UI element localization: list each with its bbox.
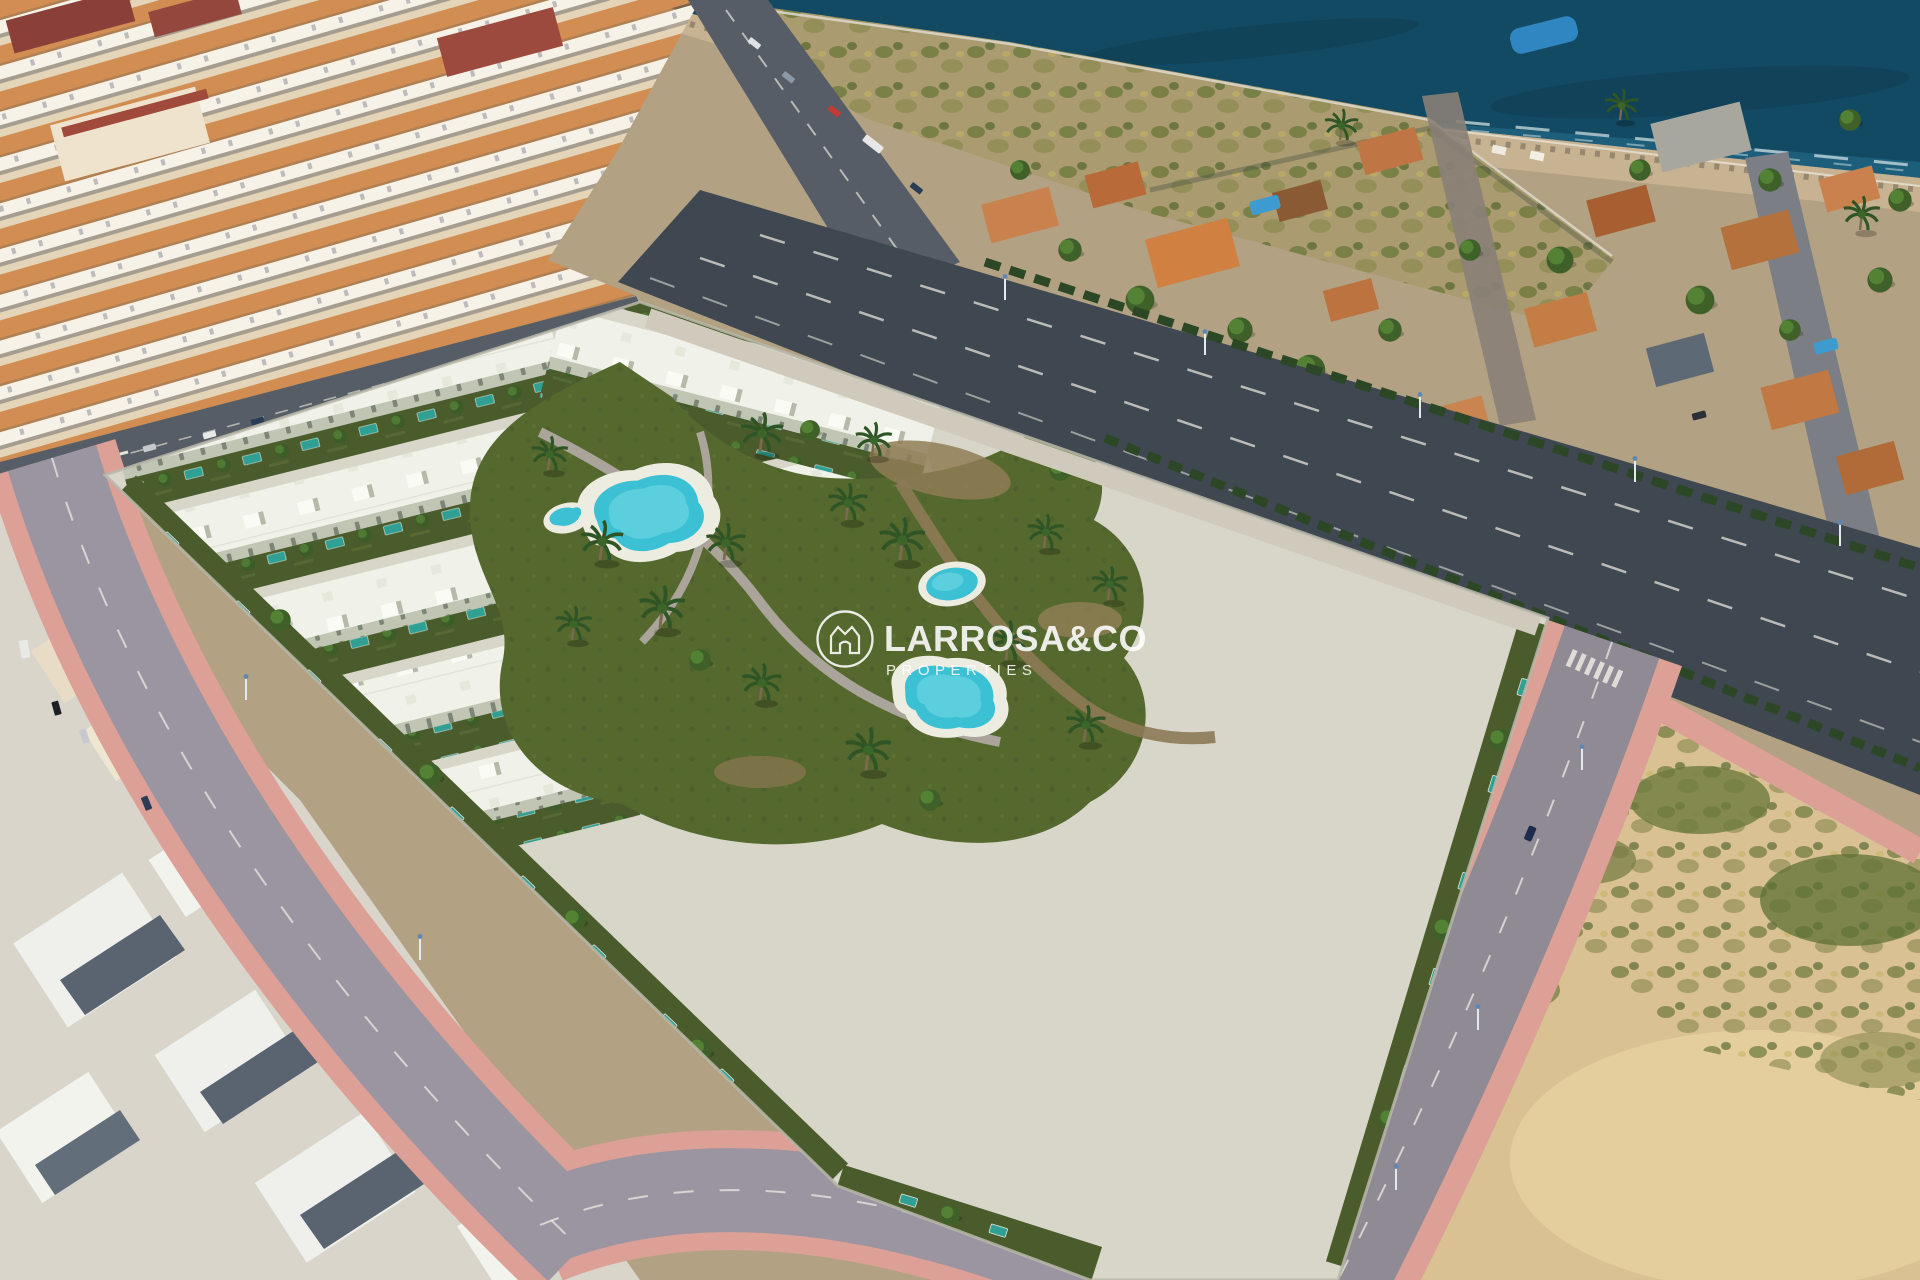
scene-canvas: LARROSA&CO PROPERTIES bbox=[0, 0, 1920, 1280]
brand-text: LARROSA&CO bbox=[884, 618, 1147, 659]
aerial-photo-render: LARROSA&CO PROPERTIES bbox=[0, 0, 1920, 1280]
tagline-text: PROPERTIES bbox=[886, 662, 1037, 679]
